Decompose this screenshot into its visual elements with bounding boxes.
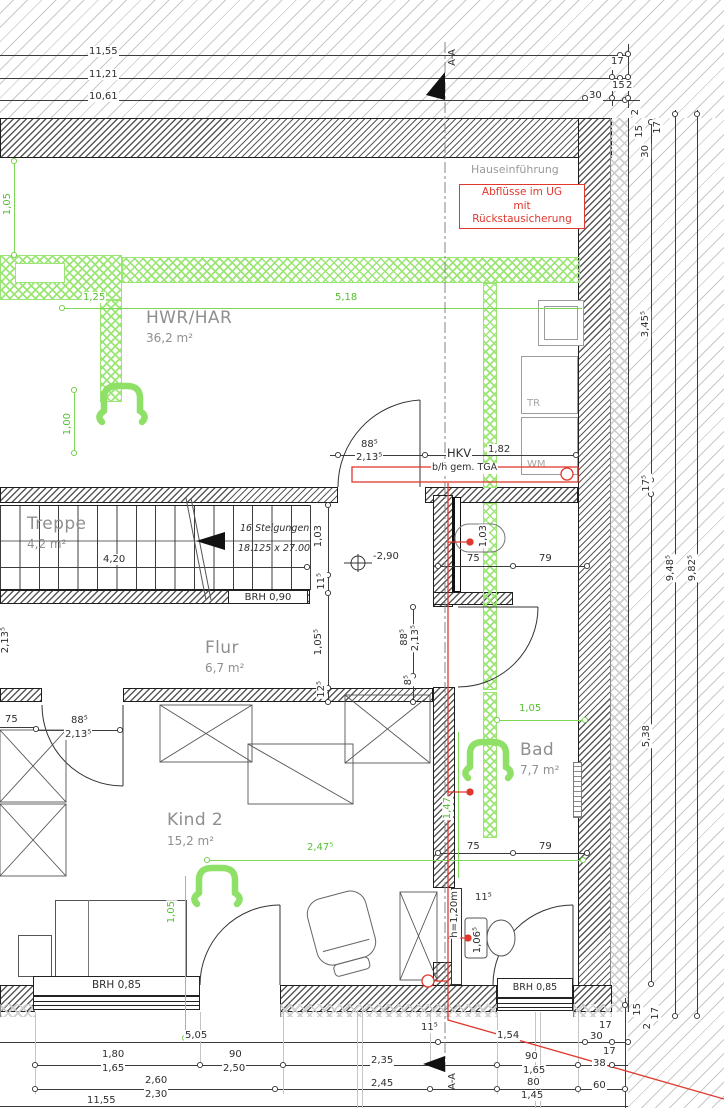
dim-label: 1,54 bbox=[496, 1030, 520, 1041]
room-name-flur: Flur bbox=[205, 638, 239, 658]
section-arrow-bottom bbox=[423, 1056, 445, 1072]
dim-label: -2,90 bbox=[372, 551, 400, 562]
dim-label: 5,05 bbox=[184, 1030, 208, 1041]
dim-label: 1,82 bbox=[487, 444, 511, 455]
dim-label: 9,82⁵ bbox=[687, 554, 698, 582]
dim-label: 79 bbox=[538, 553, 553, 564]
dim-label: 11,55 bbox=[88, 46, 119, 57]
dim-label: 1,03 bbox=[313, 524, 324, 548]
partition-height-label: h=1,20m bbox=[449, 890, 460, 939]
section-label-bottom: A-A bbox=[447, 1072, 458, 1091]
stair-step-note: 18.125 x 27.00 bbox=[237, 544, 311, 555]
dim-label: 2,13⁵ bbox=[64, 729, 92, 740]
dim-label: 1,47 bbox=[442, 796, 453, 820]
dim-label: 75 bbox=[466, 553, 481, 564]
room-name-treppe: Treppe bbox=[27, 514, 86, 534]
dim-label: 2,13⁵ bbox=[0, 626, 11, 654]
dim-label: 90 bbox=[228, 1049, 243, 1060]
dim-label: 1,05 bbox=[518, 703, 542, 714]
dim-label: 30 bbox=[588, 90, 603, 101]
drain-note: Abflüsse im UG mit Rückstausicherung bbox=[459, 184, 585, 229]
dim-label: 75 bbox=[4, 714, 19, 725]
section-label-top: A-A bbox=[447, 48, 458, 67]
dim-label: 5,38 bbox=[641, 724, 652, 748]
chair bbox=[304, 887, 383, 980]
dim-label: 17 bbox=[602, 1046, 617, 1057]
hauseinfuehrung-note: Hauseinführung bbox=[470, 164, 560, 176]
dim-label: 11⁵ bbox=[316, 572, 327, 591]
dim-label: 30 bbox=[640, 144, 651, 159]
dim-label: 2 bbox=[630, 108, 641, 116]
dim-label: 12⁵ bbox=[316, 680, 327, 699]
dim-label: 2,30 bbox=[144, 1089, 168, 1100]
dim-label: 17⁵ bbox=[641, 474, 652, 493]
dim-label: 1,80 bbox=[101, 1049, 125, 1060]
green-dim-markers bbox=[11, 158, 587, 1040]
dim-label: 88⁵ bbox=[360, 439, 379, 450]
door-hwr bbox=[338, 400, 420, 487]
room-name-hwr: HWR/HAR bbox=[146, 308, 232, 328]
dim-label: 1,00 bbox=[62, 412, 73, 436]
dim-label: 4,20 bbox=[102, 554, 126, 565]
dim-label: 1,65 bbox=[522, 1065, 546, 1076]
dim-label: 11⁵ bbox=[420, 1022, 439, 1033]
dim-label: 79 bbox=[538, 841, 553, 852]
room-name-kind2: Kind 2 bbox=[167, 810, 223, 830]
dim-label: 1,05⁵ bbox=[313, 628, 324, 656]
dim-label: 88⁵ bbox=[70, 715, 89, 726]
drain-note-line2: mit Rückstausicherung bbox=[462, 200, 582, 227]
dim-label: 90 bbox=[524, 1051, 539, 1062]
dim-label: 2 bbox=[625, 80, 633, 91]
dim-label: 11⁵ bbox=[474, 892, 493, 903]
door-bad-upper bbox=[458, 607, 538, 687]
dim-markers bbox=[32, 51, 699, 1091]
room-name-bad: Bad bbox=[520, 740, 554, 760]
stair-cut-line bbox=[186, 498, 211, 600]
dim-label: 1,05 bbox=[2, 192, 13, 216]
dim-label: 8⁵ bbox=[403, 674, 414, 686]
dim-label: 11,21 bbox=[88, 69, 119, 80]
dim-label: 1,06⁵ bbox=[472, 926, 483, 954]
dim-label: 1,45 bbox=[520, 1090, 544, 1101]
dim-label: 2 bbox=[642, 1022, 653, 1030]
room-area-hwr: 36,2 m² bbox=[146, 331, 193, 345]
dim-label: 38 bbox=[592, 1058, 607, 1069]
dim-label: 5,18 bbox=[334, 292, 358, 303]
dim-label: 9,48⁵ bbox=[665, 554, 676, 582]
dim-label: 2,50 bbox=[222, 1063, 246, 1074]
room-area-flur: 6,7 m² bbox=[205, 661, 244, 675]
hkv-label: HKV bbox=[446, 447, 472, 460]
dim-label: 11,55 bbox=[86, 1095, 117, 1106]
dim-label: 1,65 bbox=[101, 1063, 125, 1074]
dim-label: 17 bbox=[652, 120, 663, 135]
dim-label: 2,13⁵ bbox=[410, 624, 421, 652]
dim-label: 88⁵ bbox=[399, 628, 410, 647]
dim-label: 2,47⁵ bbox=[306, 842, 334, 853]
dim-label: 2,13⁵ bbox=[355, 452, 383, 463]
door-kind2-exterior bbox=[200, 905, 280, 985]
drain-note-line1: Abflüsse im UG bbox=[462, 186, 582, 200]
floor-plan: TR WM BRH 0,85 BRH 0,85 BRH 0,90 bbox=[0, 0, 724, 1108]
dim-label: 15 bbox=[632, 1002, 643, 1017]
dim-label: 10,61 bbox=[88, 91, 119, 102]
dim-label: 2,60 bbox=[144, 1075, 168, 1086]
dim-label: 17 bbox=[598, 1020, 613, 1031]
dim-label: 1,03 bbox=[478, 524, 489, 548]
hkv-spec-label: b/h gem. TGA bbox=[431, 463, 498, 474]
dim-label: 17 bbox=[650, 1006, 661, 1021]
dim-label: 2,35 bbox=[370, 1055, 394, 1066]
dim-label: 30 bbox=[589, 1031, 604, 1042]
dim-label: 1,25 bbox=[82, 292, 106, 303]
room-area-treppe: 4,2 m² bbox=[27, 537, 66, 551]
dim-label: 3,45⁵ bbox=[640, 310, 651, 338]
level-marker-icon bbox=[344, 554, 372, 572]
room-area-kind2: 15,2 m² bbox=[167, 834, 214, 848]
dim-label: 1,05 bbox=[166, 900, 177, 924]
section-arrow-top bbox=[426, 72, 445, 100]
dim-label: 15 bbox=[611, 80, 626, 91]
dim-label: 2,45 bbox=[370, 1078, 394, 1089]
dim-label: 15 bbox=[634, 124, 645, 139]
dim-label: 80 bbox=[526, 1077, 541, 1088]
dim-label: 75 bbox=[466, 841, 481, 852]
room-area-bad: 7,7 m² bbox=[520, 763, 559, 777]
dim-label: 60 bbox=[592, 1080, 607, 1091]
dim-label: 17 bbox=[610, 56, 625, 67]
stair-count-note: 16 Steigungen bbox=[239, 524, 310, 535]
